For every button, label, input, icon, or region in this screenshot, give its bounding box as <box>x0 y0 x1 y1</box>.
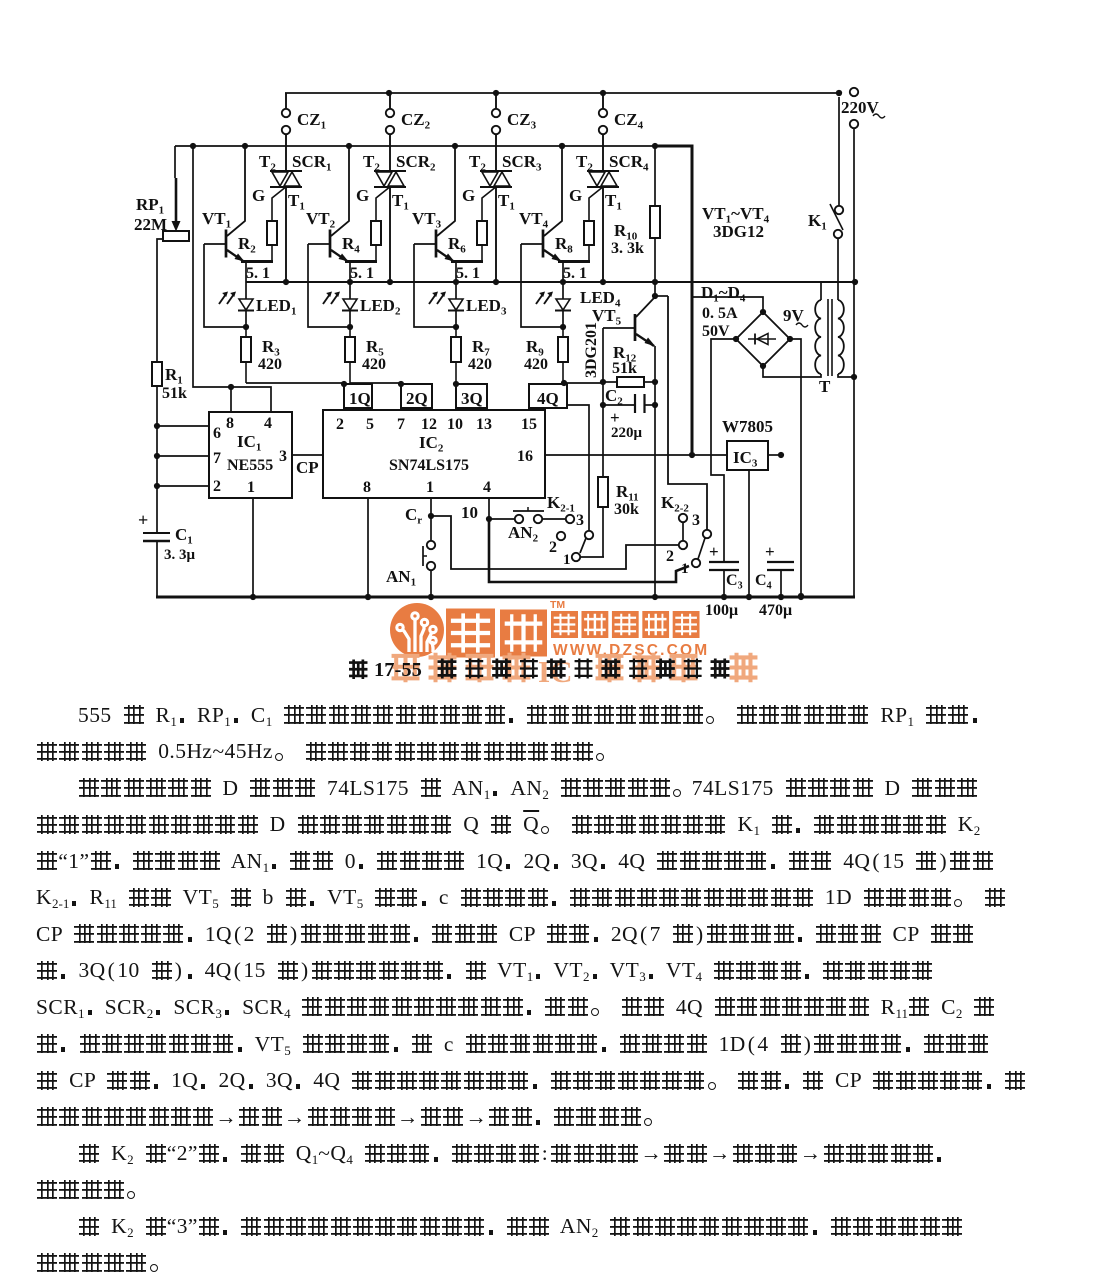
svg-text:1Q: 1Q <box>349 389 371 408</box>
svg-text:100μ: 100μ <box>705 602 738 619</box>
svg-text:2: 2 <box>549 539 557 556</box>
svg-text:1: 1 <box>247 479 255 496</box>
svg-text:T1​: T1​ <box>392 191 409 213</box>
svg-text:SCR4​: SCR4​ <box>609 152 649 174</box>
svg-text:2: 2 <box>666 548 674 565</box>
svg-text:5. 1: 5. 1 <box>350 265 374 282</box>
svg-text:T1​: T1​ <box>288 191 305 213</box>
svg-text:VT1​: VT1​ <box>202 209 231 231</box>
svg-text:220V: 220V <box>841 98 880 117</box>
svg-text:CZ4​: CZ4​ <box>614 110 644 132</box>
svg-text:T2​: T2​ <box>469 152 486 174</box>
svg-text:2: 2 <box>213 478 221 495</box>
svg-text:16: 16 <box>517 448 533 465</box>
svg-text:VT3​: VT3​ <box>412 209 442 231</box>
svg-text:D1​~D4​: D1​~D4​ <box>701 283 746 305</box>
svg-text:R1​: R1​ <box>165 365 183 387</box>
svg-text:1: 1 <box>681 561 689 577</box>
svg-text:C4​: C4​ <box>755 572 772 592</box>
svg-text:T: T <box>819 377 831 396</box>
svg-text:C2​: C2​ <box>605 386 623 408</box>
svg-text:420: 420 <box>258 356 282 373</box>
svg-text:R2​: R2​ <box>238 234 256 256</box>
svg-text:2: 2 <box>336 416 344 433</box>
svg-text:2Q: 2Q <box>406 389 428 408</box>
svg-text:+: + <box>138 510 148 530</box>
svg-text:3. 3μ: 3. 3μ <box>164 547 196 563</box>
svg-text:1: 1 <box>426 479 434 496</box>
svg-text:3: 3 <box>279 448 287 465</box>
svg-text:5. 1: 5. 1 <box>456 265 480 282</box>
svg-text:T2​: T2​ <box>363 152 380 174</box>
svg-text:3DG12: 3DG12 <box>713 222 764 241</box>
svg-text:NE555: NE555 <box>227 457 273 474</box>
svg-text:TM: TM <box>550 599 565 611</box>
svg-text:470μ: 470μ <box>759 602 792 619</box>
svg-text:RP1​: RP1​ <box>136 195 164 217</box>
svg-text:0. 5A: 0. 5A <box>702 305 738 322</box>
svg-text:SCR1​: SCR1​ <box>292 152 332 174</box>
svg-text:420: 420 <box>524 356 548 373</box>
svg-text:5: 5 <box>366 416 374 433</box>
svg-text:12: 12 <box>421 416 437 433</box>
svg-text:8: 8 <box>226 415 234 432</box>
svg-text:4: 4 <box>264 415 272 432</box>
svg-text:T2​: T2​ <box>259 152 276 174</box>
svg-text:R4​: R4​ <box>342 234 360 256</box>
svg-text:6: 6 <box>213 425 221 442</box>
svg-text:1: 1 <box>563 552 571 568</box>
svg-text:51k: 51k <box>162 385 187 402</box>
svg-text:420: 420 <box>362 356 386 373</box>
svg-text:5. 1: 5. 1 <box>563 265 587 282</box>
svg-text:R6​: R6​ <box>448 234 466 256</box>
svg-text:3DG201: 3DG201 <box>583 322 600 378</box>
svg-text:AN2​: AN2​ <box>508 523 539 545</box>
svg-text:G: G <box>462 186 475 205</box>
svg-text:W7805: W7805 <box>722 417 773 436</box>
svg-text:LED2​: LED2​ <box>360 296 401 318</box>
svg-text:13: 13 <box>476 416 492 433</box>
svg-text:LED3​: LED3​ <box>466 296 507 318</box>
svg-text:9V: 9V <box>783 306 805 325</box>
svg-text:R8​: R8​ <box>555 234 573 256</box>
svg-text:T1​: T1​ <box>605 191 622 213</box>
svg-text:51k: 51k <box>612 360 637 377</box>
svg-text:VT4​: VT4​ <box>519 209 549 231</box>
svg-text:CZ3​: CZ3​ <box>507 110 537 132</box>
svg-text:4: 4 <box>483 479 491 496</box>
svg-text:220μ: 220μ <box>611 425 643 441</box>
svg-text:T1​: T1​ <box>498 191 515 213</box>
svg-text:CZ1​: CZ1​ <box>297 110 326 132</box>
svg-text:4Q: 4Q <box>537 389 559 408</box>
svg-text:T2​: T2​ <box>576 152 593 174</box>
svg-text:C1​: C1​ <box>175 525 193 547</box>
svg-text:10: 10 <box>447 416 463 433</box>
svg-text:7: 7 <box>213 450 221 467</box>
svg-text:SCR2​: SCR2​ <box>396 152 436 174</box>
svg-text:VT2​: VT2​ <box>306 209 336 231</box>
svg-text:3Q: 3Q <box>461 389 483 408</box>
svg-text:22M: 22M <box>134 215 167 234</box>
svg-text:K1​: K1​ <box>808 211 827 233</box>
svg-text:7: 7 <box>397 416 405 433</box>
svg-text:+: + <box>709 542 719 561</box>
svg-text:SN74LS175: SN74LS175 <box>389 457 469 474</box>
svg-text:Cr​: Cr​ <box>405 505 422 527</box>
svg-text:5. 1: 5. 1 <box>246 265 270 282</box>
svg-text:+: + <box>765 542 775 561</box>
svg-text:3. 3k: 3. 3k <box>611 240 644 257</box>
svg-text:420: 420 <box>468 356 492 373</box>
svg-text:K2-1​: K2-1​ <box>547 493 575 515</box>
svg-text:CP: CP <box>296 458 319 477</box>
svg-text:3: 3 <box>576 512 584 529</box>
svg-text:G: G <box>569 186 582 205</box>
svg-text:50V: 50V <box>702 323 730 340</box>
svg-text:SCR3​: SCR3​ <box>502 152 542 174</box>
svg-text:G: G <box>252 186 265 205</box>
svg-text:LED1​: LED1​ <box>256 296 296 318</box>
svg-text:C3​: C3​ <box>726 572 743 592</box>
svg-text:AN1​: AN1​ <box>386 567 416 589</box>
svg-text:3: 3 <box>692 512 700 529</box>
svg-text:8: 8 <box>363 479 371 496</box>
svg-text:10: 10 <box>461 503 478 522</box>
svg-text:G: G <box>356 186 369 205</box>
svg-text:CZ2​: CZ2​ <box>401 110 431 132</box>
svg-text:K2-2​: K2-2​ <box>661 493 689 515</box>
svg-text:17-55: 17-55 <box>374 659 422 681</box>
svg-text:30k: 30k <box>614 501 639 518</box>
svg-text:15: 15 <box>521 416 537 433</box>
